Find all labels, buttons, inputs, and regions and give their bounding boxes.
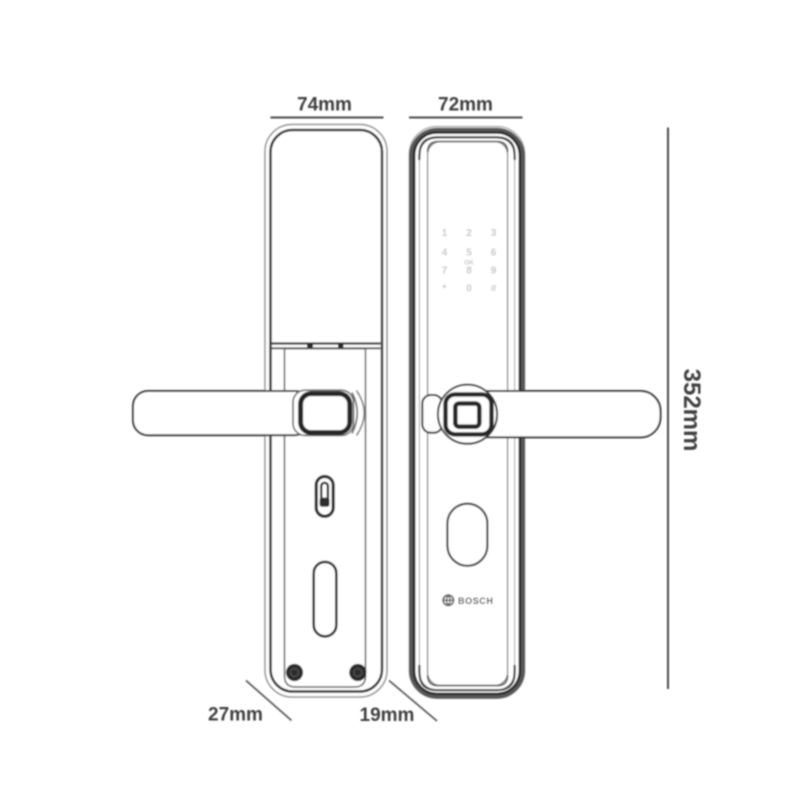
svg-text:74mm: 74mm — [297, 95, 352, 116]
svg-text:19mm: 19mm — [360, 705, 415, 726]
svg-text:2: 2 — [466, 228, 472, 239]
svg-text:4: 4 — [442, 248, 448, 259]
svg-text:9: 9 — [491, 266, 497, 277]
svg-text:7: 7 — [442, 266, 448, 277]
svg-text:8: 8 — [466, 266, 472, 277]
svg-text:27mm: 27mm — [208, 704, 263, 725]
svg-text:72mm: 72mm — [438, 95, 493, 116]
svg-text:3: 3 — [491, 228, 497, 239]
svg-text:BOSCH: BOSCH — [458, 596, 494, 606]
svg-text:6: 6 — [491, 248, 497, 259]
svg-text:5: 5 — [466, 248, 472, 259]
svg-text:1: 1 — [442, 228, 448, 239]
svg-text:*: * — [443, 284, 447, 295]
svg-text:#: # — [491, 284, 497, 295]
svg-text:0: 0 — [466, 284, 472, 295]
svg-text:352mm: 352mm — [678, 369, 705, 452]
